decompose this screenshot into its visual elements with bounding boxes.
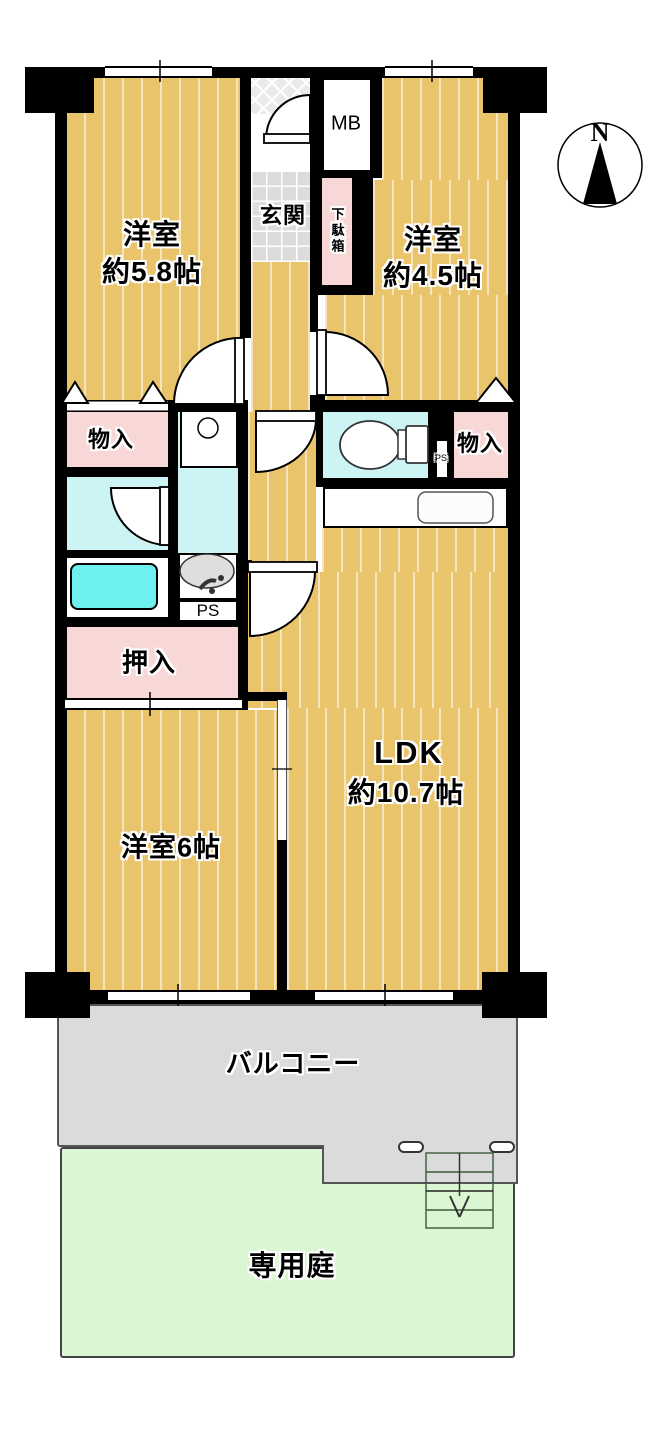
closet-door-marker: [62, 382, 88, 403]
room-size-bedroom-nw: 約5.8帖: [102, 250, 202, 290]
shoe-cabinet-label: 下駄箱: [328, 207, 347, 255]
washbasin-knob: [209, 588, 215, 594]
pipe-space-east-label: PS: [435, 453, 447, 463]
floor-plan: N 洋室 約5.8帖 洋室 約4.5帖 玄関 下駄箱 MB 物入 物入 PS P…: [0, 0, 671, 1434]
room-label-bedroom-nw: 洋室: [123, 213, 181, 253]
toilet-bowl: [340, 421, 400, 469]
room-label-bedroom-ne: 洋室: [404, 218, 462, 258]
door-leaf-toilet: [256, 411, 316, 421]
room-label-bedroom-sw: 洋室6帖: [121, 826, 221, 865]
kitchen-sink: [418, 492, 493, 523]
compass-north-label: N: [591, 118, 610, 147]
closet-door-marker: [140, 382, 167, 403]
closet-door-marker: [476, 378, 516, 403]
door-arc-toilet: [256, 419, 316, 472]
toilet-tank: [406, 426, 428, 463]
door-leaf-ldk: [248, 562, 317, 572]
room-size-ldk: 約10.7帖: [348, 771, 465, 811]
door-arc-ldk: [250, 571, 315, 636]
washbasin-knob: [218, 575, 224, 581]
door-leaf-washroom: [160, 487, 169, 545]
room-label-ldk: LDK: [374, 735, 444, 771]
garden-stairs: [426, 1153, 493, 1228]
washing-machine-drain: [198, 418, 218, 438]
balcony-label: バルコニー: [226, 1044, 360, 1081]
room-size-bedroom-ne: 約4.5帖: [383, 254, 483, 294]
pipe-space-center-label: PS: [197, 601, 220, 621]
private-garden-label: 専用庭: [248, 1244, 335, 1284]
meter-box-label: MB: [331, 113, 361, 136]
storage-east-label: 物入: [457, 426, 503, 458]
stairs-down-arrow: [460, 1196, 470, 1217]
compass: N: [558, 118, 642, 207]
closet-label: 押入: [122, 643, 176, 680]
door-arc-entrance: [266, 95, 310, 139]
storage-west-label: 物入: [88, 422, 134, 454]
door-leaf-entrance: [264, 134, 310, 143]
door-leaf-bedroom-nw: [235, 338, 244, 404]
compass-needle: [583, 142, 617, 204]
door-arc-bedroom-ne: [325, 332, 388, 395]
door-leaf-bedroom-ne: [317, 330, 326, 395]
stairs-down-arrow: [450, 1196, 460, 1217]
entrance-label: 玄関: [260, 198, 306, 230]
door-arc-bedroom-nw: [174, 338, 240, 404]
